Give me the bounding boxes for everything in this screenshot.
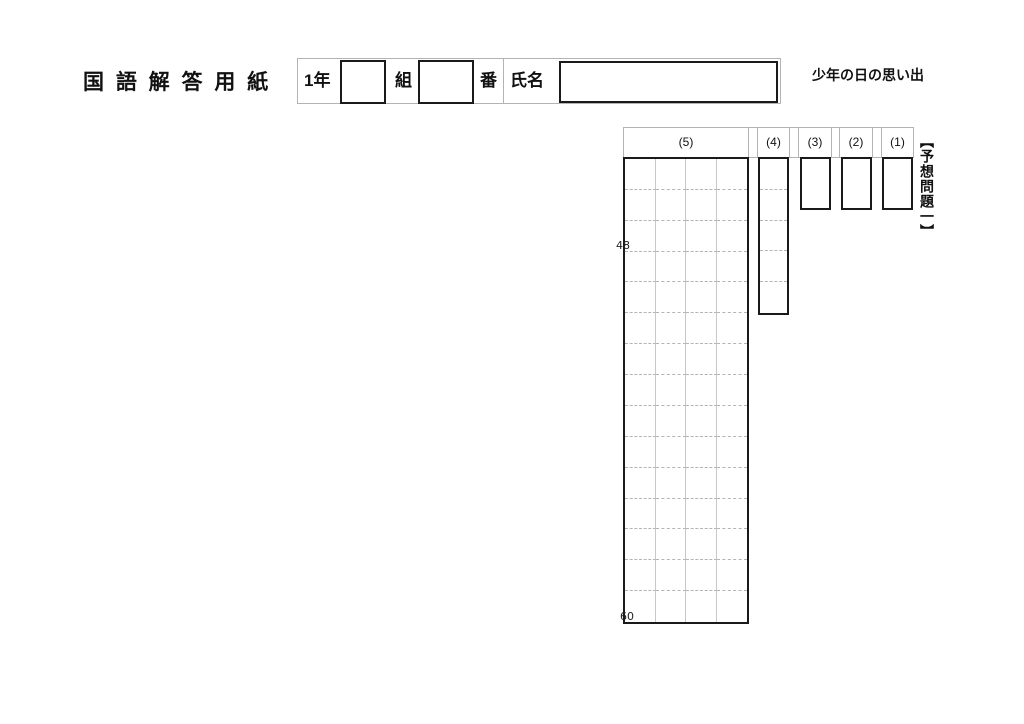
writing-cell (656, 190, 687, 221)
answer-box-q1[interactable] (882, 157, 913, 210)
writing-cell (717, 282, 748, 313)
writing-cell (686, 406, 717, 437)
writing-cell (625, 560, 656, 591)
writing-cell (686, 313, 717, 344)
answer-header-q4: (4) (757, 127, 790, 158)
answer-sheet-page: 国 語 解 答 用 紙 1年 組 番 氏名 少年の日の思い出 【予想問題一】 (… (0, 0, 1024, 724)
writing-cell (656, 313, 687, 344)
answer-box-q4[interactable] (758, 157, 789, 315)
writing-cell (717, 221, 748, 252)
writing-cell (686, 529, 717, 560)
writing-cell (656, 375, 687, 406)
writing-cell (625, 344, 656, 375)
char-count-marker-60: 60 (620, 611, 634, 622)
answer-header-q5: (5) (623, 127, 749, 158)
writing-grid-cells (625, 159, 747, 622)
writing-cell (686, 344, 717, 375)
writing-cell (717, 468, 748, 499)
answer-header-q1: (1) (881, 127, 914, 158)
answer-grid-q5[interactable] (623, 157, 749, 624)
writing-cell (760, 159, 787, 190)
writing-cell (656, 468, 687, 499)
writing-cell (717, 529, 748, 560)
writing-cell (656, 529, 687, 560)
number-input-box[interactable] (418, 60, 474, 104)
writing-cell (717, 313, 748, 344)
writing-cell (717, 252, 748, 283)
writing-cell (686, 252, 717, 283)
answer-header-q3: (3) (798, 127, 832, 158)
writing-cell (625, 375, 656, 406)
writing-cell (625, 406, 656, 437)
writing-cell (717, 344, 748, 375)
writing-cell (656, 282, 687, 313)
writing-cell (686, 375, 717, 406)
name-input-box[interactable] (559, 61, 778, 103)
answer-header-q2: (2) (839, 127, 873, 158)
writing-cell (717, 560, 748, 591)
writing-cell (686, 437, 717, 468)
writing-cell (656, 252, 687, 283)
writing-cell (656, 591, 687, 622)
writing-cell (717, 591, 748, 622)
writing-cell (656, 344, 687, 375)
writing-cell (656, 159, 687, 190)
grade-label: 1年 (304, 59, 330, 103)
writing-cell (717, 375, 748, 406)
header-divider (503, 59, 504, 103)
writing-cell (656, 499, 687, 530)
writing-cell (686, 591, 717, 622)
answer-box-q2[interactable] (841, 157, 872, 210)
class-label: 組 (395, 59, 412, 103)
writing-cell (686, 190, 717, 221)
writing-cell (686, 560, 717, 591)
writing-cell (686, 282, 717, 313)
writing-cell (717, 190, 748, 221)
page-title: 国 語 解 答 用 紙 (83, 66, 271, 96)
writing-cell (686, 468, 717, 499)
writing-cell (625, 190, 656, 221)
writing-cell (625, 437, 656, 468)
writing-cell (625, 499, 656, 530)
name-label: 氏名 (510, 59, 544, 103)
writing-cell (625, 159, 656, 190)
writing-cell (760, 282, 787, 313)
q4-cells (760, 159, 787, 313)
writing-cell (717, 499, 748, 530)
student-info-table: 1年 組 番 氏名 (297, 58, 781, 104)
writing-cell (686, 499, 717, 530)
writing-cell (625, 282, 656, 313)
writing-cell (760, 221, 787, 252)
writing-cell (760, 251, 787, 282)
writing-cell (760, 190, 787, 221)
writing-cell (625, 313, 656, 344)
writing-cell (656, 560, 687, 591)
number-label: 番 (480, 59, 497, 103)
writing-cell (656, 437, 687, 468)
writing-cell (686, 221, 717, 252)
subject-title: 少年の日の思い出 (812, 65, 924, 85)
writing-cell (625, 252, 656, 283)
problem-set-label: 【予想問題一】 (917, 134, 937, 244)
writing-cell (717, 437, 748, 468)
writing-cell (686, 159, 717, 190)
writing-cell (717, 159, 748, 190)
answer-box-q3[interactable] (800, 157, 831, 210)
writing-cell (656, 406, 687, 437)
char-count-marker-48: 48 (616, 240, 630, 251)
writing-cell (656, 221, 687, 252)
writing-cell (625, 529, 656, 560)
writing-cell (625, 468, 656, 499)
writing-cell (717, 406, 748, 437)
class-input-box[interactable] (340, 60, 386, 104)
